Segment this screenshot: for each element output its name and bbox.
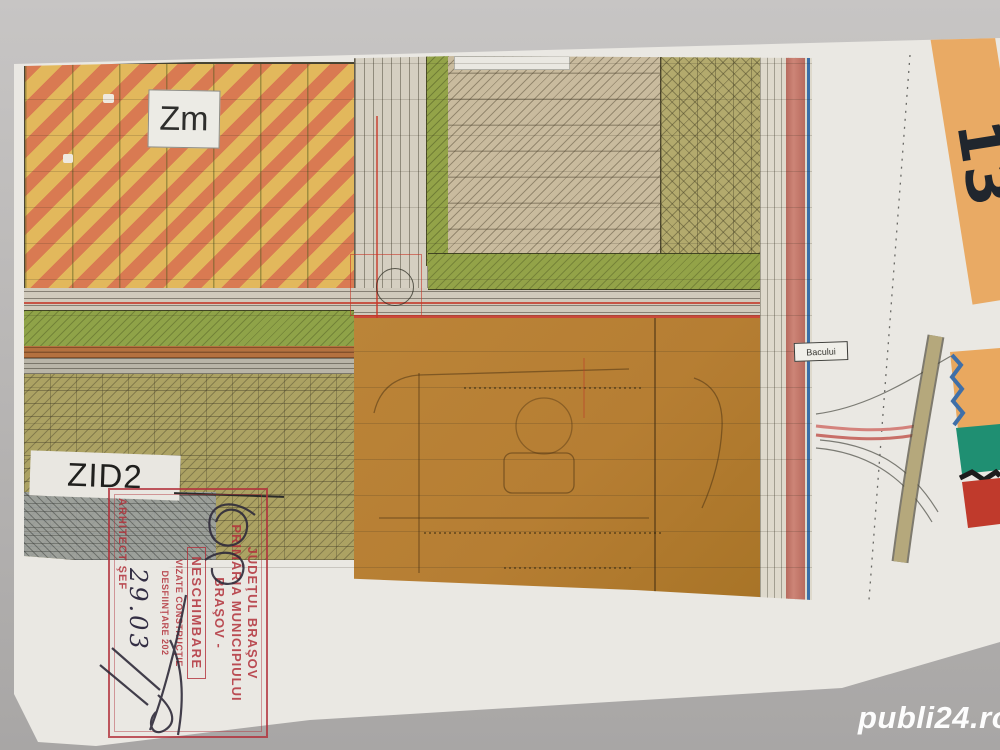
photo-background: Zm ZID2 Bacului 13 — [0, 0, 1000, 750]
watermark-text: publi24.ro — [858, 700, 1000, 736]
signature-ink — [0, 0, 1000, 750]
